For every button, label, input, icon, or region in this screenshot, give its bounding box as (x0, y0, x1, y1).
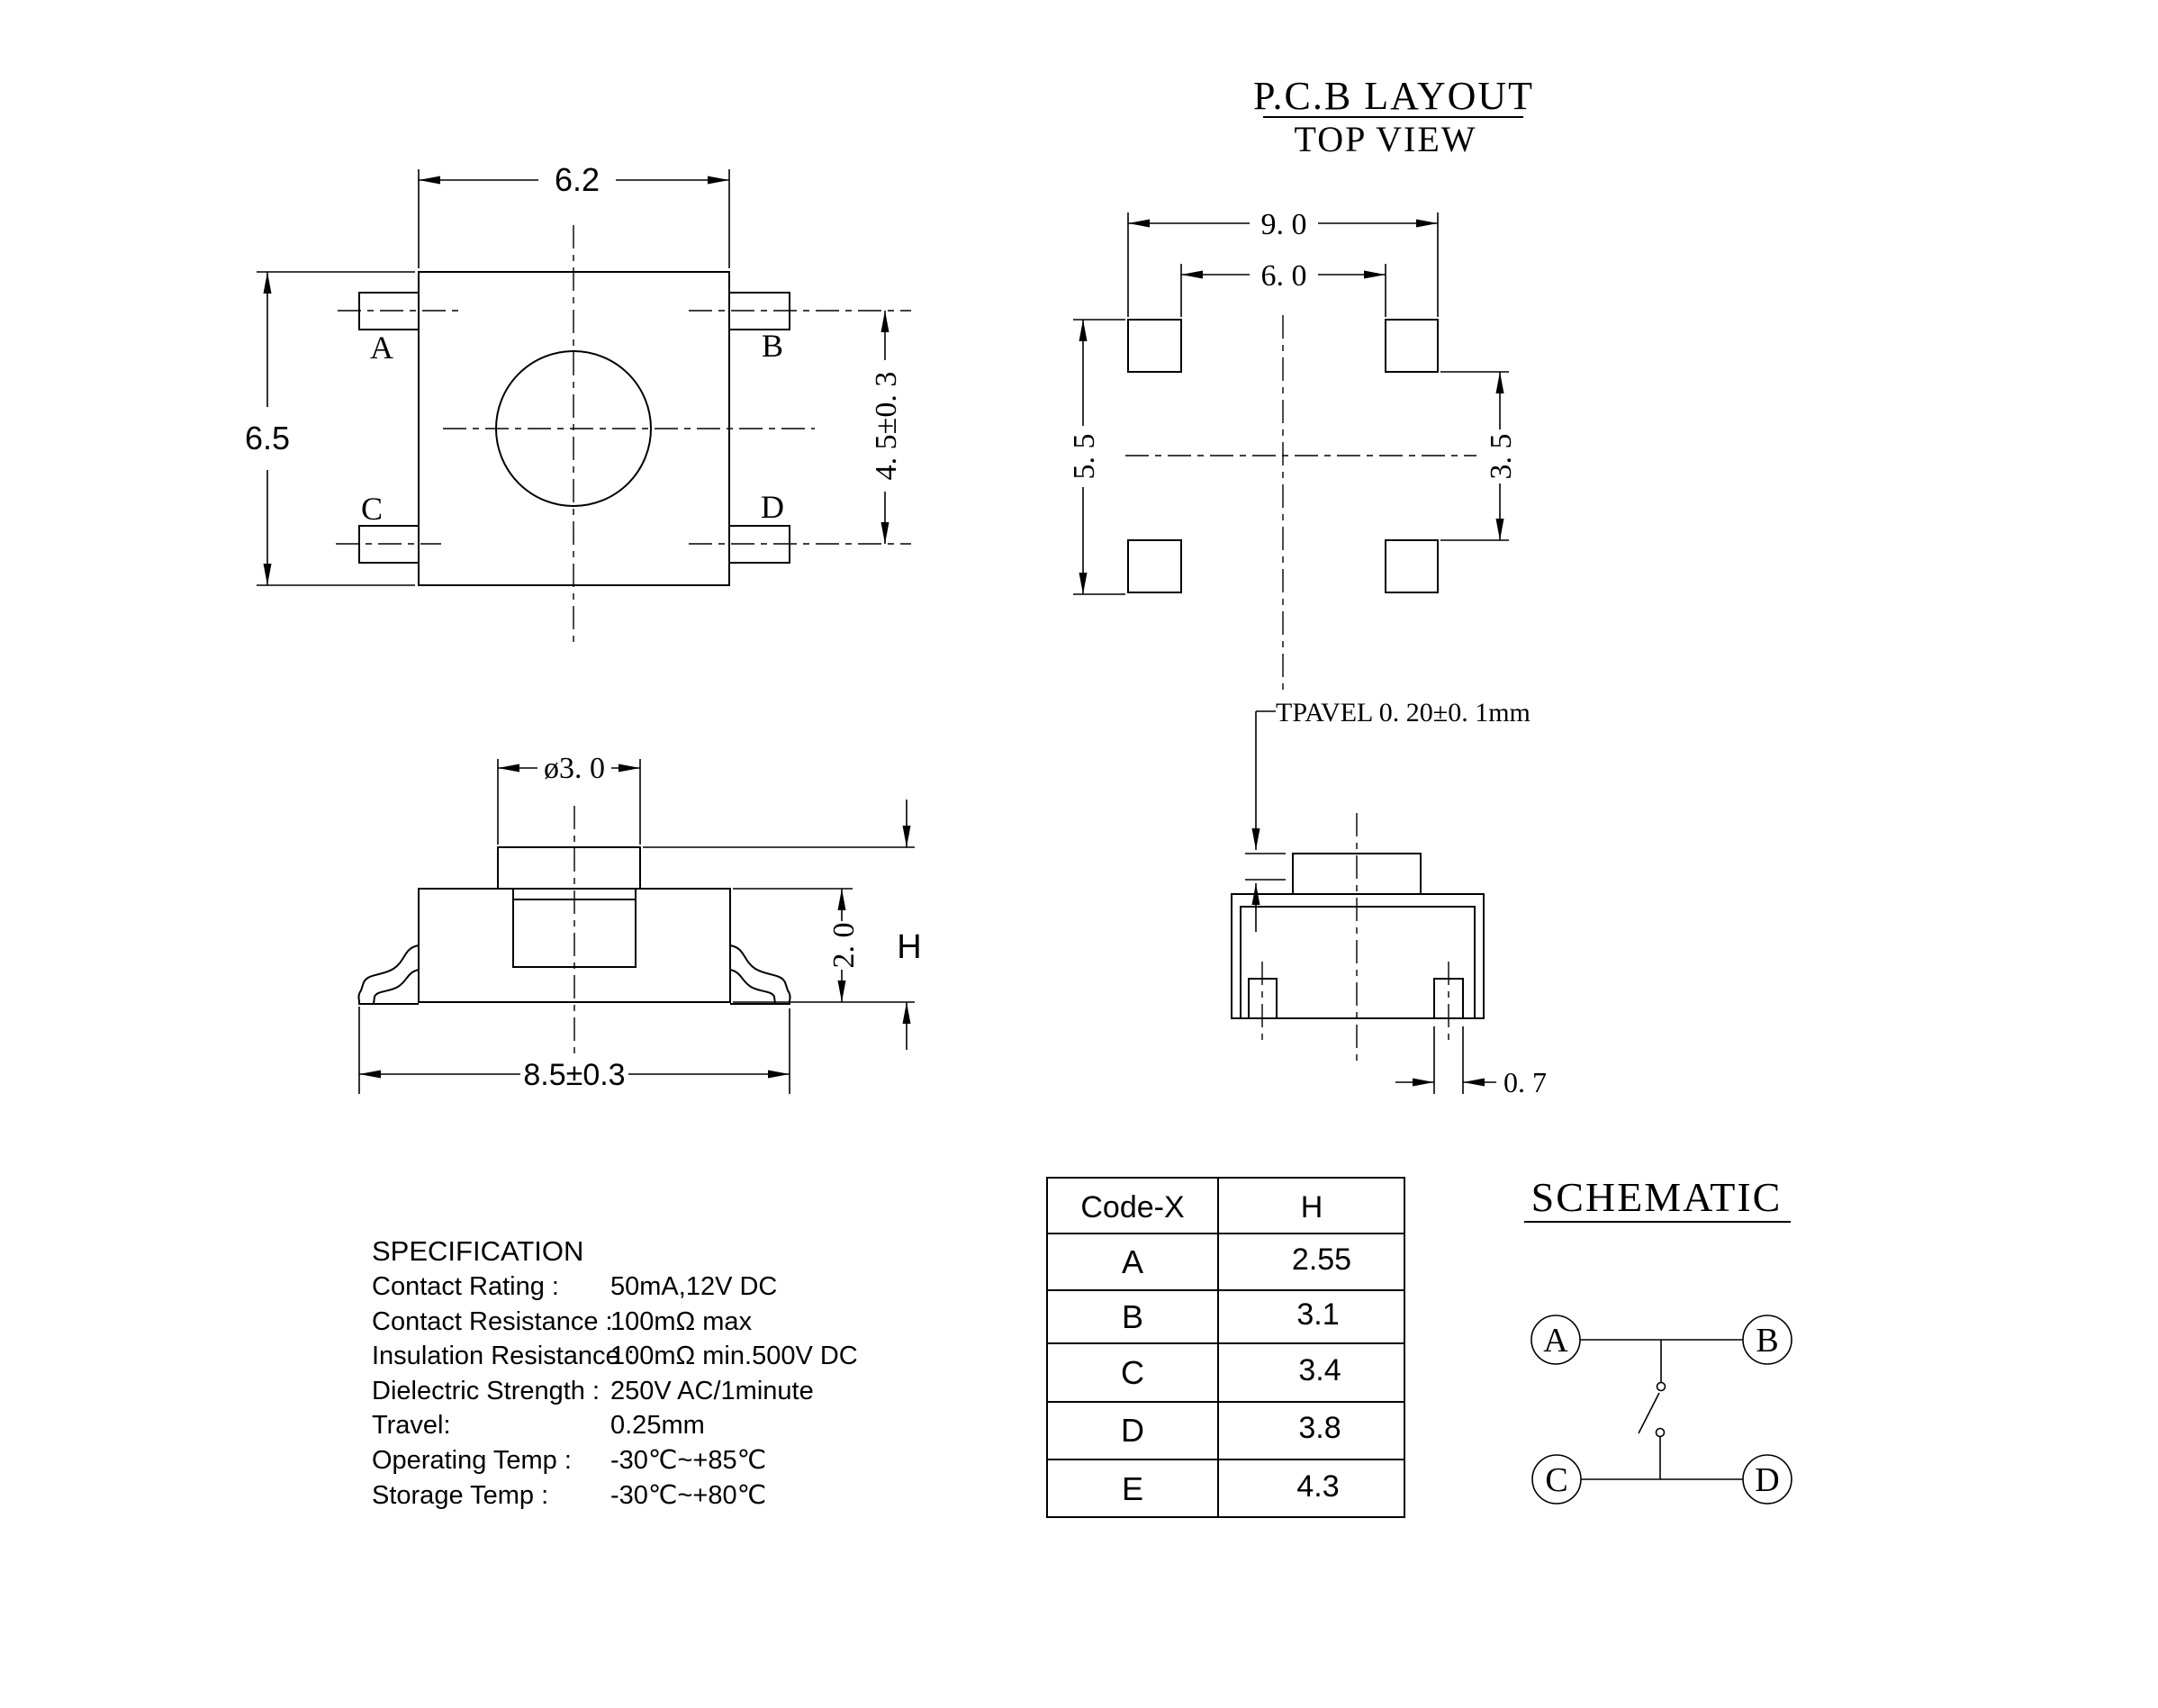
arrow-right-icon (1413, 1079, 1434, 1087)
schematic-view: SCHEMATIC A B C D (1524, 1174, 1792, 1504)
right-lead-inner-edge (730, 970, 775, 1004)
table-cell-code: E (1122, 1470, 1143, 1507)
specification-block: SPECIFICATION Contact Rating : 50mA,12V … (372, 1235, 858, 1510)
dim-inner-label: 6. 0 (1261, 259, 1307, 293)
spec-label: Dielectric Strength : (372, 1377, 600, 1405)
spec-value: 100mΩ min.500V DC (610, 1342, 858, 1370)
arrow-down-icon (1252, 828, 1260, 850)
pin-b-label: B (762, 328, 783, 364)
table-cell-code: A (1122, 1243, 1143, 1280)
dim-right-label: 3. 5 (1485, 434, 1518, 480)
schematic-pin-a-label: A (1543, 1322, 1568, 1360)
spec-title: SPECIFICATION (372, 1235, 583, 1267)
table-cell-code: D (1121, 1412, 1144, 1449)
arrow-up-icon (838, 889, 846, 910)
spec-label: Operating Temp : (372, 1446, 572, 1475)
code-height-table: Code-X H A 2.55 B 3.1 C 3.4 D 3.8 E 4.3 (1047, 1178, 1404, 1517)
pad-top-right (1386, 320, 1438, 372)
spec-value: -30℃~+85℃ (610, 1446, 766, 1475)
schematic-switch-lever (1639, 1393, 1659, 1433)
arrow-down-icon (838, 981, 846, 1002)
dim-foot-width-label: 0. 7 (1503, 1066, 1547, 1098)
arrow-left-icon (1463, 1079, 1485, 1087)
arrow-right-icon (768, 1071, 790, 1079)
table-cell-h: 3.4 (1298, 1353, 1341, 1387)
schematic-pin-d-label: D (1755, 1461, 1779, 1499)
pcb-layout-title: P.C.B LAYOUT (1253, 74, 1534, 118)
table-cell-h: 2.55 (1292, 1243, 1351, 1277)
schematic-pin-c-label: C (1545, 1461, 1567, 1499)
spec-label: Travel: (372, 1411, 451, 1440)
spec-value: 0.25mm (610, 1411, 705, 1440)
arrow-left-icon (419, 176, 440, 185)
arrow-up-icon (903, 1002, 911, 1024)
spec-value: -30℃~+80℃ (610, 1481, 766, 1510)
dim-total-height-label: H (897, 928, 921, 966)
spec-value: 250V AC/1minute (610, 1377, 814, 1405)
button-side-outline (498, 847, 640, 889)
spec-label: Contact Resistance : (372, 1307, 613, 1336)
arrow-left-icon (498, 764, 519, 773)
arrow-down-icon (903, 826, 911, 847)
arrow-left-icon (1128, 220, 1150, 228)
arrow-down-icon (1496, 519, 1504, 540)
spec-value: 50mA,12V DC (610, 1272, 777, 1301)
arrow-up-icon (1496, 372, 1504, 393)
dim-width-label: 6.2 (555, 161, 600, 198)
travel-note-label: TPAVEL 0. 20±0. 1mm (1276, 698, 1530, 727)
switch-top-view: A B C D 6.2 6.5 4. 5±0. 3 (245, 161, 911, 644)
table-cell-h: 3.1 (1296, 1297, 1339, 1332)
pin-d-label: D (761, 489, 784, 525)
table-border (1047, 1178, 1404, 1517)
arrow-down-icon (264, 564, 272, 585)
arrow-up-icon (264, 272, 272, 294)
arrow-down-icon (881, 522, 889, 544)
dim-height-label: 6.5 (245, 420, 290, 456)
dim-body-height-label: 2. 0 (827, 923, 861, 969)
arrow-right-icon (1416, 220, 1438, 228)
schematic-title: SCHEMATIC (1531, 1174, 1783, 1220)
arrow-left-icon (359, 1071, 381, 1079)
arrow-down-icon (1079, 573, 1088, 594)
pin-a-label: A (370, 330, 393, 366)
spec-label: Contact Rating : (372, 1272, 559, 1301)
schematic-upper-contact (1657, 1383, 1666, 1391)
travel-body-outer (1232, 894, 1484, 1018)
arrow-up-icon (881, 311, 889, 332)
schematic-lower-contact (1657, 1429, 1665, 1437)
table-header-h: H (1301, 1190, 1323, 1225)
arrow-right-icon (619, 764, 640, 773)
travel-side-view: TPAVEL 0. 20±0. 1mm 0. 7 (1232, 698, 1547, 1098)
spec-value: 100mΩ max (610, 1307, 753, 1336)
dim-knob-label: ø3. 0 (544, 752, 605, 785)
arrow-up-icon (1079, 320, 1088, 341)
table-cell-h: 3.8 (1298, 1411, 1341, 1445)
spec-label: Insulation Resistance : (372, 1342, 635, 1370)
spec-label: Storage Temp : (372, 1481, 548, 1510)
switch-side-view: ø3. 0 2. 0 H 8.5±0.3 (358, 752, 921, 1094)
dim-outer-label: 9. 0 (1261, 208, 1307, 241)
dim-terminal-pitch-label: 4. 5±0. 3 (870, 372, 903, 481)
pin-c-label: C (361, 491, 383, 527)
arrow-right-icon (708, 176, 729, 185)
schematic-pin-b-label: B (1756, 1322, 1778, 1360)
pcb-layout-subtitle: TOP VIEW (1294, 119, 1476, 159)
datasheet-page: A B C D 6.2 6.5 4. 5±0. 3 P.C.B LAYOUT T… (0, 0, 2158, 1708)
pad-bottom-left (1128, 540, 1181, 592)
arrow-left-icon (1181, 271, 1203, 279)
dim-left-label: 5. 5 (1068, 434, 1101, 480)
pad-bottom-right (1386, 540, 1438, 592)
table-cell-code: B (1122, 1298, 1143, 1335)
table-cell-code: C (1121, 1354, 1144, 1391)
pcb-layout-view: P.C.B LAYOUT TOP VIEW (1068, 74, 1534, 695)
technical-drawing: A B C D 6.2 6.5 4. 5±0. 3 P.C.B LAYOUT T… (0, 0, 2158, 1708)
dim-overall-width-label: 8.5±0.3 (523, 1058, 625, 1092)
arrow-right-icon (1364, 271, 1386, 279)
left-lead-inner-edge (374, 970, 419, 1004)
pad-top-left (1128, 320, 1181, 372)
table-header-code: Code-X (1080, 1190, 1184, 1225)
table-cell-h: 4.3 (1296, 1469, 1339, 1504)
